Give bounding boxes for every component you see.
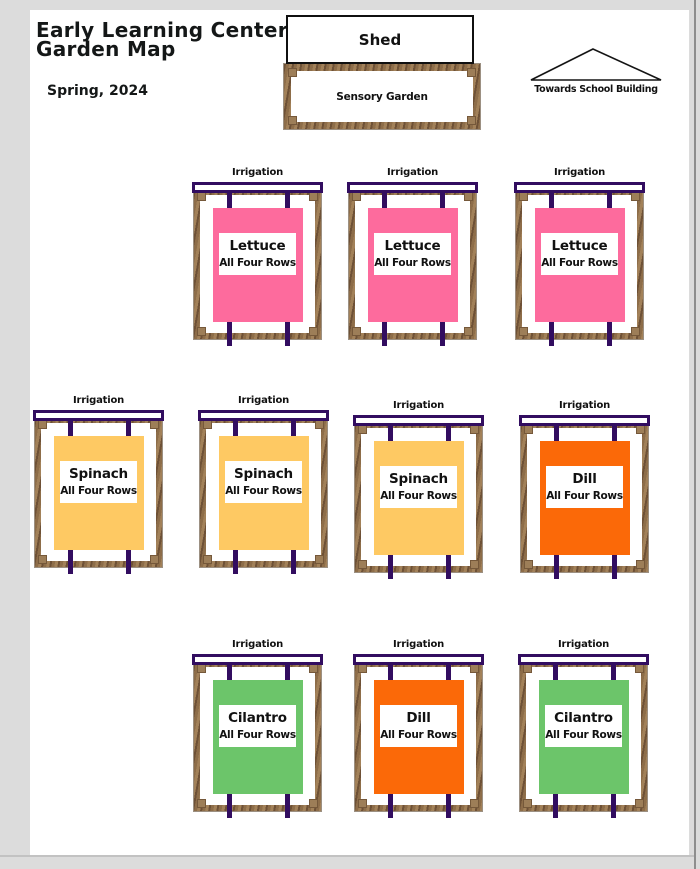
crop-name: Lettuce [541, 238, 618, 254]
crop-rows-note: All Four Rows [374, 257, 451, 269]
frame-corner [519, 192, 528, 201]
crop-label-card: Lettuce All Four Rows [219, 233, 296, 275]
crop-rows-note: All Four Rows [225, 485, 302, 497]
crop-name: Cilantro [545, 710, 622, 726]
frame-corner [203, 420, 212, 429]
crop-label-card: Lettuce All Four Rows [374, 233, 451, 275]
frame-corner [288, 68, 297, 77]
crop-rows-note: All Four Rows [380, 729, 457, 741]
frame-corner [197, 327, 206, 336]
frame-corner [470, 560, 479, 569]
crop-rows-note: All Four Rows [219, 257, 296, 269]
frame-corner [470, 799, 479, 808]
irrigation-header-pipe [514, 182, 645, 193]
irrigation-header-pipe [353, 654, 484, 665]
frame-corner [315, 555, 324, 564]
shed-box: Shed [286, 15, 474, 64]
irrigation-label: Irrigation [353, 400, 484, 411]
irrigation-header-pipe [198, 410, 329, 421]
irrigation-header-pipe [347, 182, 478, 193]
frame-corner [358, 664, 367, 673]
frame-corner [631, 192, 640, 201]
page-bottom-edge [0, 855, 694, 857]
crop-label-card: Lettuce All Four Rows [541, 233, 618, 275]
crop-name: Spinach [60, 466, 137, 482]
crop-rows-note: All Four Rows [541, 257, 618, 269]
garden-bed: Irrigation Cilantro All Four Rows [192, 639, 323, 821]
frame-corner [309, 327, 318, 336]
crop-name: Cilantro [219, 710, 296, 726]
crop-rows-note: All Four Rows [219, 729, 296, 741]
crop-label-card: Spinach All Four Rows [60, 461, 137, 503]
frame-corner [288, 116, 297, 125]
irrigation-header-pipe [518, 654, 649, 665]
crop-label-card: Dill All Four Rows [380, 705, 457, 747]
irrigation-header-pipe [353, 415, 484, 426]
frame-corner [352, 327, 361, 336]
garden-bed: Irrigation Spinach All Four Rows [33, 395, 164, 577]
irrigation-label: Irrigation [198, 395, 329, 406]
garden-bed: Irrigation Dill All Four Rows [519, 400, 650, 582]
frame-corner [358, 425, 367, 434]
irrigation-label: Irrigation [33, 395, 164, 406]
crop-name: Dill [380, 710, 457, 726]
frame-corner [197, 799, 206, 808]
garden-bed: Irrigation Lettuce All Four Rows [347, 167, 478, 349]
crop-name: Lettuce [374, 238, 451, 254]
frame-corner [464, 327, 473, 336]
frame-corner [197, 664, 206, 673]
frame-corner [467, 68, 476, 77]
irrigation-label: Irrigation [514, 167, 645, 178]
frame-corner [197, 192, 206, 201]
irrigation-label: Irrigation [192, 167, 323, 178]
crop-label-card: Spinach All Four Rows [380, 466, 457, 508]
irrigation-header-pipe [519, 415, 650, 426]
frame-corner [470, 425, 479, 434]
frame-corner [309, 799, 318, 808]
frame-corner [309, 664, 318, 673]
frame-corner [519, 327, 528, 336]
frame-corner [467, 116, 476, 125]
frame-corner [150, 420, 159, 429]
document-canvas: Early Learning Center Garden Map Spring,… [0, 0, 700, 869]
frame-corner [203, 555, 212, 564]
irrigation-label: Irrigation [347, 167, 478, 178]
frame-corner [38, 555, 47, 564]
crop-label-card: Spinach All Four Rows [225, 461, 302, 503]
frame-corner [631, 327, 640, 336]
irrigation-header-pipe [192, 182, 323, 193]
frame-corner [524, 425, 533, 434]
panel-edge [694, 0, 696, 869]
crop-rows-note: All Four Rows [380, 490, 457, 502]
frame-corner [635, 664, 644, 673]
frame-corner [358, 799, 367, 808]
irrigation-label: Irrigation [519, 400, 650, 411]
frame-corner [358, 560, 367, 569]
garden-bed: Irrigation Cilantro All Four Rows [518, 639, 649, 821]
crop-label-card: Cilantro All Four Rows [219, 705, 296, 747]
frame-corner [38, 420, 47, 429]
irrigation-header-pipe [192, 654, 323, 665]
frame-corner [635, 799, 644, 808]
frame-corner [150, 555, 159, 564]
frame-corner [352, 192, 361, 201]
irrigation-header-pipe [33, 410, 164, 421]
shed-label: Shed [359, 31, 401, 49]
garden-bed: Irrigation Lettuce All Four Rows [192, 167, 323, 349]
frame-corner [523, 799, 532, 808]
crop-name: Spinach [380, 471, 457, 487]
frame-corner [309, 192, 318, 201]
frame-corner [524, 560, 533, 569]
crop-rows-note: All Four Rows [546, 490, 623, 502]
garden-bed: Irrigation Lettuce All Four Rows [514, 167, 645, 349]
frame-corner [470, 664, 479, 673]
irrigation-label: Irrigation [353, 639, 484, 650]
frame-corner [636, 560, 645, 569]
frame-corner [523, 664, 532, 673]
crop-rows-note: All Four Rows [60, 485, 137, 497]
garden-bed: Irrigation Spinach All Four Rows [198, 395, 329, 577]
crop-rows-note: All Four Rows [545, 729, 622, 741]
crop-name: Lettuce [219, 238, 296, 254]
garden-bed: Irrigation Dill All Four Rows [353, 639, 484, 821]
sensory-garden-label: Sensory Garden [336, 91, 428, 103]
irrigation-label: Irrigation [518, 639, 649, 650]
irrigation-label: Irrigation [192, 639, 323, 650]
frame-corner [315, 420, 324, 429]
frame-corner [636, 425, 645, 434]
crop-label-card: Dill All Four Rows [546, 466, 623, 508]
crop-label-card: Cilantro All Four Rows [545, 705, 622, 747]
garden-bed: Irrigation Spinach All Four Rows [353, 400, 484, 582]
crop-name: Spinach [225, 466, 302, 482]
garden-beds-layer: Irrigation Lettuce All Four Rows Irrigat… [0, 0, 700, 869]
frame-corner [464, 192, 473, 201]
crop-name: Dill [546, 471, 623, 487]
sensory-garden-box: Sensory Garden [284, 64, 480, 129]
